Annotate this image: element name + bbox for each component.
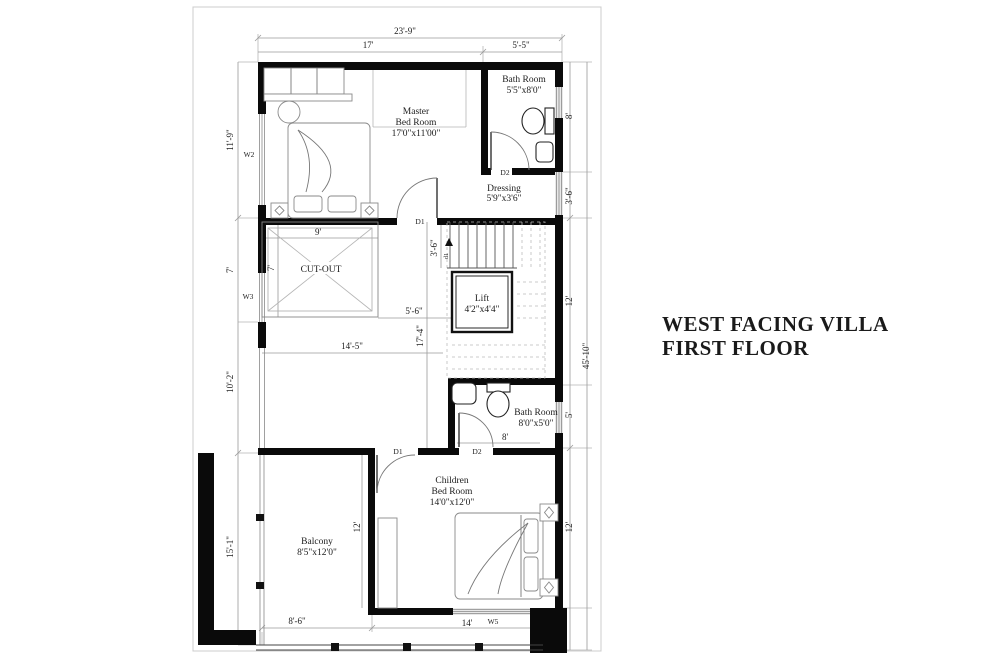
bath-top-fixtures <box>522 108 554 162</box>
tag-w5: W5 <box>488 617 499 626</box>
master-bed <box>271 123 378 218</box>
wardrobe <box>378 518 397 608</box>
drawing-title: WEST FACING VILLA FIRST FLOOR <box>662 312 889 360</box>
dressing-window <box>555 172 563 215</box>
dim-left-mid: 7' <box>225 267 235 274</box>
bath-top-size: 5'5"x8'0" <box>507 86 542 96</box>
dim-overall-height: 45'-10" <box>581 343 591 370</box>
tag-d2-bath-top: D2 <box>500 168 509 177</box>
tag-d1-children: D1 <box>393 447 402 456</box>
bath-mid-size: 8'0"x5'0" <box>519 419 554 429</box>
side-table <box>361 203 378 218</box>
dim-stair-width: 3'-6" <box>429 239 439 257</box>
bath-mid-label: Bath Room <box>514 408 558 418</box>
dim-right-dressing: 3'-6" <box>564 187 574 205</box>
title-line2: FIRST FLOOR <box>662 336 809 360</box>
balcony-outer-wall-leg <box>198 630 256 645</box>
children-bedroom-size: 14'0"x12'0" <box>430 498 475 508</box>
door-d2-bath-top <box>491 132 529 170</box>
dim-right-stairs: 12' <box>564 295 574 306</box>
cut-out-label: CUT-OUT <box>301 265 342 275</box>
balcony-outer-wall <box>198 453 214 637</box>
stool <box>278 101 300 123</box>
master-bedroom-size: 17'0"x11'00" <box>392 129 441 139</box>
door-d1-master <box>397 178 437 218</box>
dim-left-bottom: 15'-1" <box>225 536 235 558</box>
lift-size: 4'2"x4'4" <box>465 305 500 315</box>
dim-bottom-children: 14' <box>462 618 473 628</box>
dim-bottom-balcony: 8'-6" <box>288 616 306 626</box>
door-d2-bath-mid <box>459 413 493 447</box>
tag-w2: W2 <box>244 150 255 159</box>
dim-left-lower: 10'-2" <box>225 371 235 393</box>
bath-mid-fixtures <box>452 383 510 417</box>
dim-cutout-height: 7' <box>266 265 276 272</box>
dim-top-left: 17' <box>363 40 374 50</box>
pillow <box>524 557 538 591</box>
dressing-size: 5'9"x3'6" <box>487 194 522 204</box>
master-bedroom-label: Bed Room <box>396 118 438 128</box>
dim-left-upper: 11'-9" <box>225 129 235 151</box>
floor-plan-sheet: Master Bed Room 17'0"x11'00" Bath Room 5… <box>0 0 1000 660</box>
dim-right-bath-mid: 5' <box>564 412 574 419</box>
toilet-icon <box>487 391 509 417</box>
balcony-size: 8'5"x12'0" <box>297 548 337 558</box>
hall-left-window <box>260 348 265 448</box>
window-w5 <box>453 608 530 615</box>
tag-w3: W3 <box>243 292 254 301</box>
toilet-tank-icon <box>545 108 554 134</box>
children-bedroom-furniture <box>378 504 558 608</box>
side-table <box>271 203 288 218</box>
dim-divider-height: 12' <box>352 521 362 532</box>
sink-icon <box>452 383 476 404</box>
door-d1-children <box>377 455 415 493</box>
balcony-label: Balcony <box>301 537 333 547</box>
tag-d2-bath-mid: D2 <box>472 447 481 456</box>
tag-stair-door: d1 <box>443 253 450 260</box>
dim-right-bath-top: 8' <box>564 113 574 120</box>
wardrobe <box>264 68 352 101</box>
dim-hall-gap: 5'-6" <box>405 306 423 316</box>
dim-hall-height: 17'-4" <box>415 325 425 347</box>
dim-hall-width: 14'-5" <box>341 341 363 351</box>
floor-plan-drawing: Master Bed Room 17'0"x11'00" Bath Room 5… <box>0 0 1000 660</box>
bath-top-window <box>555 87 563 118</box>
toilet-icon <box>522 108 544 134</box>
pillow <box>294 196 322 212</box>
dim-bath-mid-width: 8' <box>502 432 509 442</box>
tag-d1-master: D1 <box>415 217 424 226</box>
master-bedroom-furniture <box>264 68 466 218</box>
dim-overall-width: 23'-9" <box>394 26 416 36</box>
bath-top-label: Bath Room <box>502 75 546 85</box>
dressing-label: Dressing <box>487 184 521 194</box>
dim-top-right: 5'-5" <box>512 40 530 50</box>
master-bedroom-label: Master <box>403 107 430 117</box>
title-line1: WEST FACING VILLA <box>662 312 889 336</box>
window-w2 <box>260 114 265 205</box>
pillow <box>328 196 356 212</box>
stair-direction-arrow-icon <box>445 238 453 246</box>
children-bed <box>455 504 558 599</box>
dim-cutout-width: 9' <box>315 227 322 237</box>
sink-icon <box>536 142 553 162</box>
children-bedroom-label: Children <box>435 476 468 486</box>
children-bedroom-label: Bed Room <box>432 487 474 497</box>
lift-label: Lift <box>475 293 490 304</box>
dim-right-children: 12' <box>564 521 574 532</box>
